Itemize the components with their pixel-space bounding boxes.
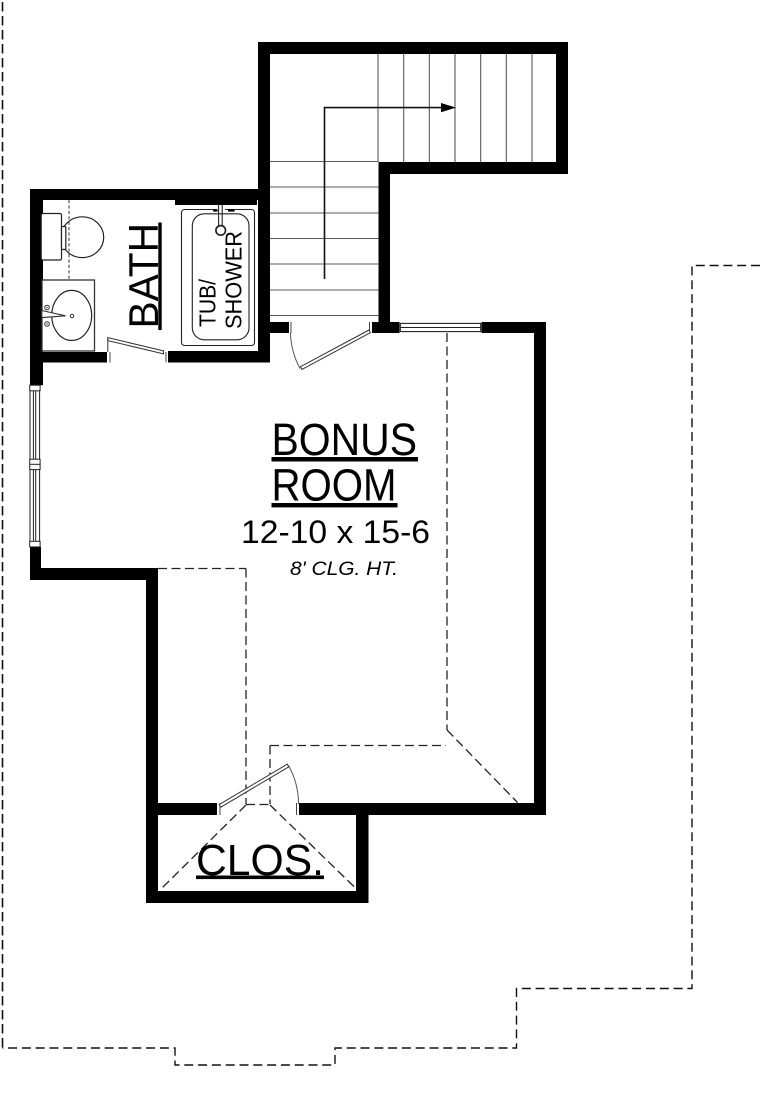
- svg-text:8' CLG. HT.: 8' CLG. HT.: [290, 559, 398, 580]
- svg-text:SHOWER: SHOWER: [221, 231, 247, 329]
- svg-text:ROOM: ROOM: [272, 460, 397, 511]
- svg-text:12-10 x 15-6: 12-10 x 15-6: [241, 514, 430, 550]
- svg-text:TUB/: TUB/: [195, 278, 221, 327]
